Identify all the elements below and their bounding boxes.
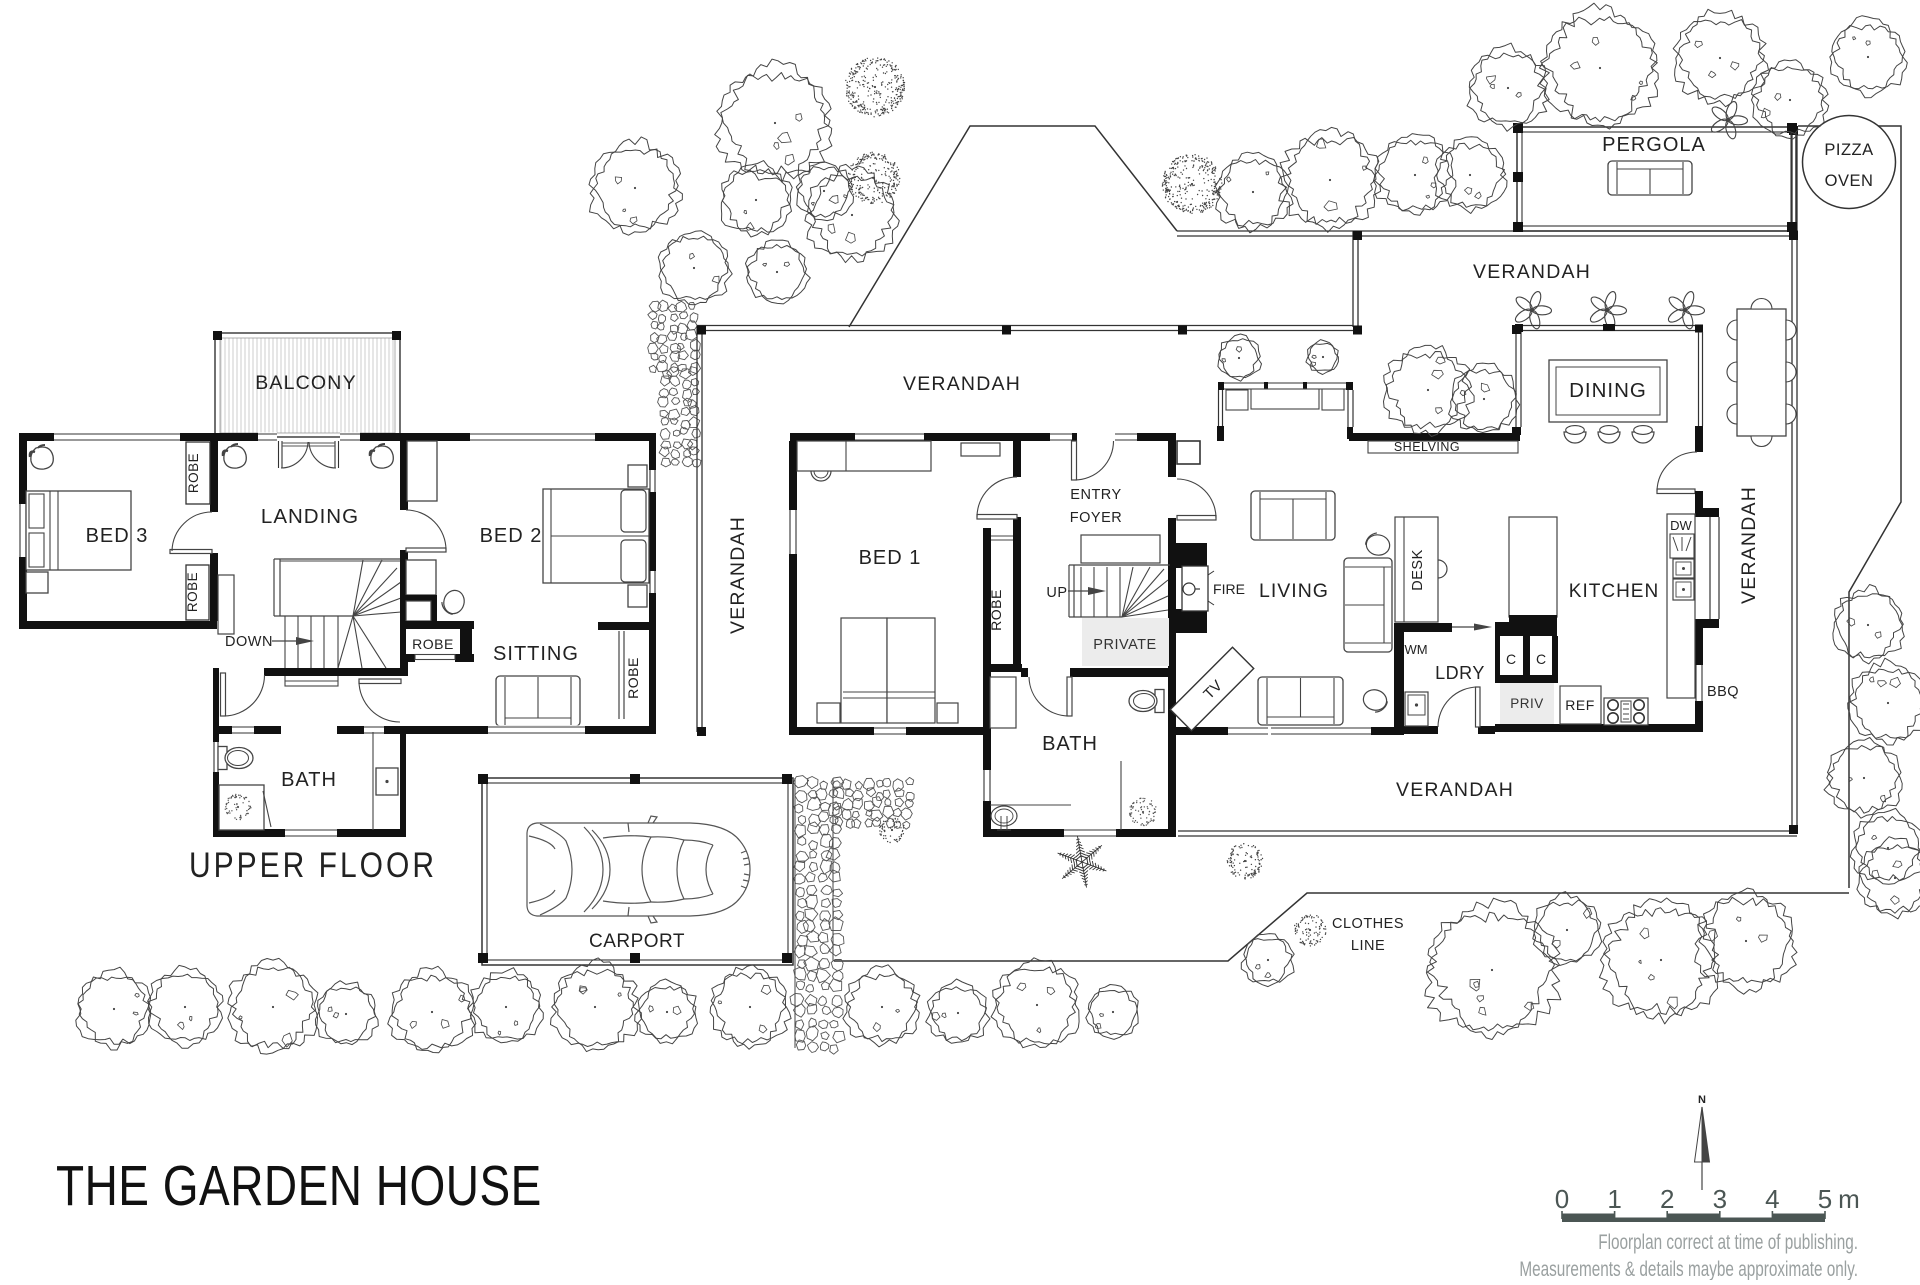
svg-text:SITTING: SITTING (493, 643, 579, 665)
svg-text:FIRE: FIRE (1213, 581, 1245, 597)
svg-text:PRIVATE: PRIVATE (1093, 637, 1156, 653)
svg-text:Measurements & details maybe a: Measurements & details maybe approximate… (1519, 1257, 1858, 1280)
svg-text:WM: WM (1404, 642, 1427, 657)
svg-text:LIVING: LIVING (1259, 580, 1329, 602)
svg-text:FOYER: FOYER (1070, 510, 1122, 526)
svg-text:REF: REF (1565, 697, 1595, 713)
svg-text:DINING: DINING (1569, 379, 1647, 402)
svg-text:DOWN: DOWN (225, 634, 273, 650)
svg-text:VERANDAH: VERANDAH (727, 516, 749, 634)
svg-text:UP: UP (1046, 585, 1067, 601)
svg-text:LANDING: LANDING (261, 505, 359, 528)
svg-text:LINE: LINE (1351, 938, 1385, 954)
svg-text:Floorplan correct at time of p: Floorplan correct at time of publishing. (1598, 1230, 1858, 1254)
svg-text:VERANDAH: VERANDAH (903, 373, 1021, 395)
svg-text:VERANDAH: VERANDAH (1473, 261, 1591, 283)
svg-text:DW: DW (1670, 518, 1692, 533)
svg-text:VERANDAH: VERANDAH (1396, 779, 1514, 801)
svg-text:ROBE: ROBE (186, 453, 201, 493)
svg-text:0: 0 (1555, 1184, 1569, 1214)
svg-text:ROBE: ROBE (988, 589, 1004, 631)
svg-text:BATH: BATH (1042, 733, 1098, 755)
svg-text:1: 1 (1607, 1184, 1621, 1214)
svg-text:m: m (1838, 1184, 1860, 1214)
svg-text:C: C (1536, 651, 1546, 667)
svg-text:KITCHEN: KITCHEN (1569, 581, 1659, 602)
svg-text:CLOTHES: CLOTHES (1332, 916, 1404, 932)
svg-text:UPPER FLOOR: UPPER FLOOR (189, 845, 437, 885)
svg-text:VERANDAH: VERANDAH (1738, 486, 1760, 604)
svg-text:C: C (1506, 651, 1516, 667)
svg-text:SHELVING: SHELVING (1394, 440, 1460, 454)
svg-text:BATH: BATH (281, 769, 337, 791)
svg-text:PERGOLA: PERGOLA (1602, 134, 1706, 156)
svg-text:PRIV: PRIV (1510, 696, 1544, 711)
svg-text:BED 2: BED 2 (480, 525, 543, 547)
svg-text:BALCONY: BALCONY (255, 372, 357, 394)
svg-text:CARPORT: CARPORT (589, 931, 685, 952)
svg-text:ROBE: ROBE (625, 657, 641, 699)
svg-text:2: 2 (1660, 1184, 1674, 1214)
svg-text:DESK: DESK (1410, 549, 1426, 591)
svg-text:OVEN: OVEN (1825, 172, 1874, 190)
svg-text:ENTRY: ENTRY (1070, 487, 1121, 503)
svg-text:BBQ: BBQ (1707, 684, 1739, 700)
svg-text:5: 5 (1818, 1184, 1832, 1214)
svg-text:ROBE: ROBE (412, 636, 454, 652)
svg-text:ROBE: ROBE (185, 572, 200, 612)
svg-text:PIZZA: PIZZA (1824, 141, 1873, 159)
svg-text:BED 3: BED 3 (86, 525, 149, 547)
svg-text:N: N (1698, 1094, 1706, 1106)
svg-text:3: 3 (1713, 1184, 1727, 1214)
svg-text:THE GARDEN HOUSE: THE GARDEN HOUSE (56, 1155, 542, 1217)
svg-text:4: 4 (1765, 1184, 1779, 1214)
svg-text:LDRY: LDRY (1435, 663, 1485, 683)
svg-text:BED 1: BED 1 (859, 547, 922, 569)
